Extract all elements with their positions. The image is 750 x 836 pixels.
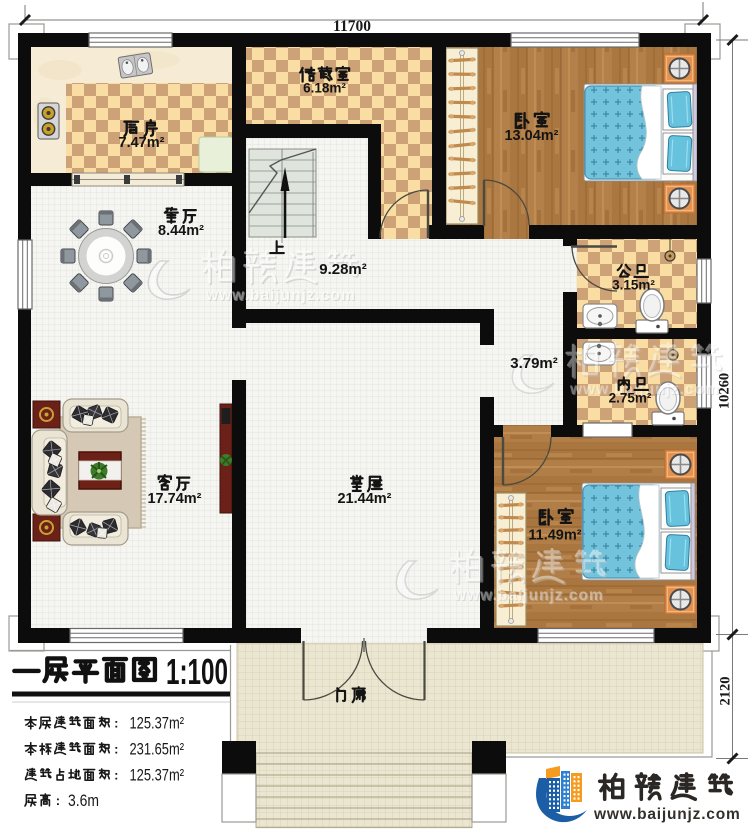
- svg-text::: :: [56, 793, 60, 808]
- svg-text:7.47m²: 7.47m²: [119, 135, 165, 151]
- svg-text:3.79m²: 3.79m²: [510, 355, 558, 372]
- svg-text:www.baijunjz.com: www.baijunjz.com: [205, 287, 356, 304]
- svg-text:6.18m²: 6.18m²: [303, 81, 346, 96]
- svg-text:13.04m²: 13.04m²: [504, 128, 558, 144]
- svg-text:10260: 10260: [717, 373, 733, 409]
- svg-text:125.37m²: 125.37m²: [130, 766, 185, 785]
- svg-text::: :: [114, 742, 118, 757]
- svg-text:231.65m²: 231.65m²: [130, 740, 185, 759]
- svg-text::: :: [114, 768, 118, 783]
- svg-text:www.baijunjz.com: www.baijunjz.com: [593, 806, 741, 823]
- svg-text:11.49m²: 11.49m²: [528, 528, 581, 544]
- svg-text:1:100: 1:100: [166, 651, 228, 692]
- svg-text:3.15m²: 3.15m²: [612, 278, 655, 293]
- svg-text:2120: 2120: [718, 677, 734, 706]
- svg-text:17.74m²: 17.74m²: [147, 491, 201, 507]
- svg-text::: :: [114, 716, 118, 731]
- svg-text:125.37m²: 125.37m²: [130, 714, 185, 733]
- svg-text:21.44m²: 21.44m²: [337, 491, 391, 507]
- svg-text:3.6m: 3.6m: [68, 791, 99, 810]
- svg-text:2.75m²: 2.75m²: [609, 391, 652, 406]
- svg-text:www.baijunjz.com: www.baijunjz.com: [453, 587, 604, 604]
- svg-text:8.44m²: 8.44m²: [158, 223, 204, 239]
- svg-text:11700: 11700: [333, 18, 371, 35]
- svg-text:9.28m²: 9.28m²: [319, 261, 367, 278]
